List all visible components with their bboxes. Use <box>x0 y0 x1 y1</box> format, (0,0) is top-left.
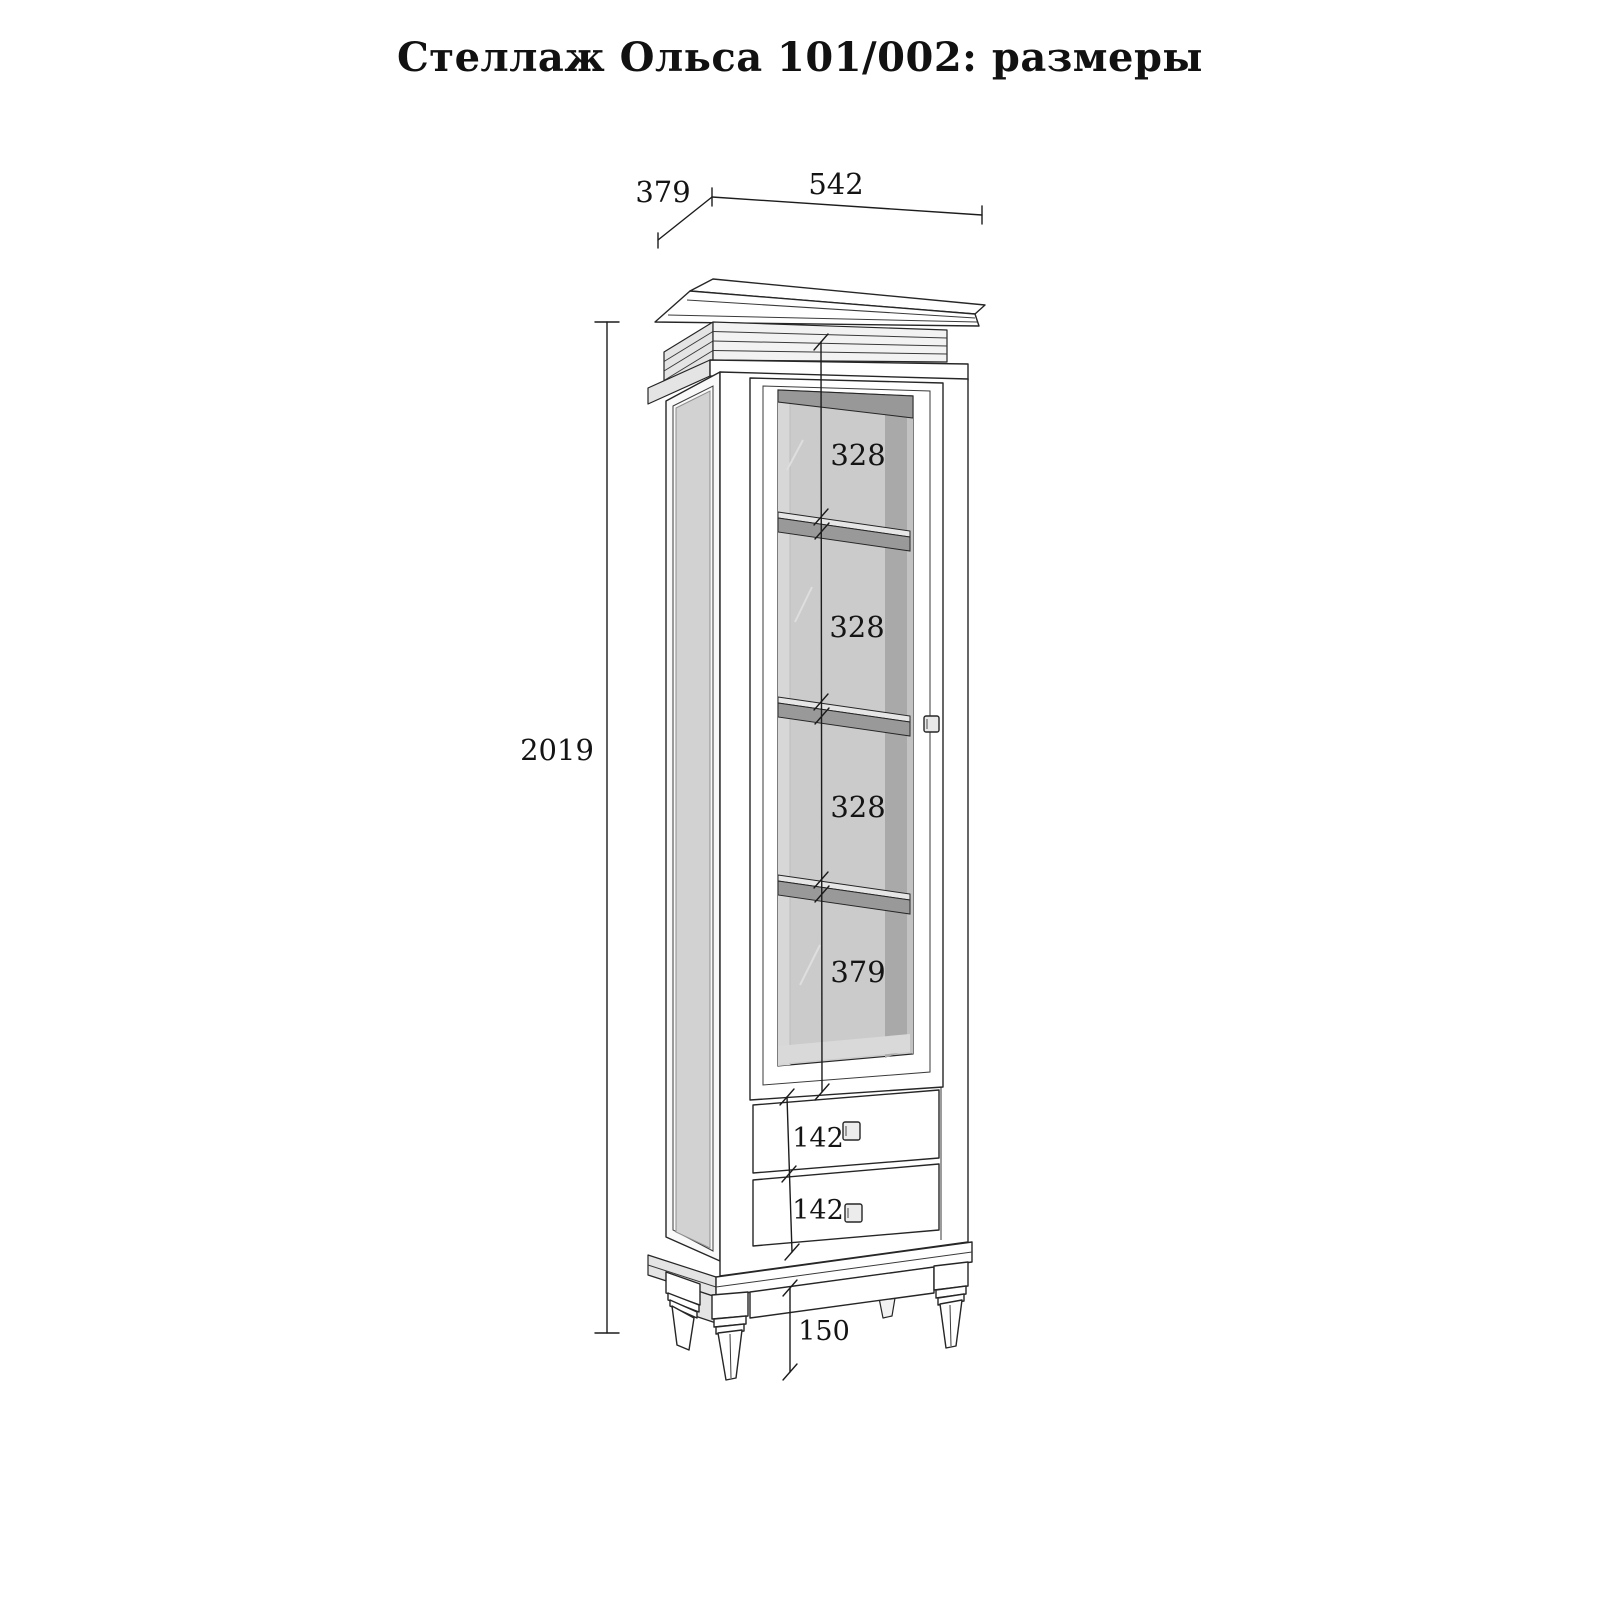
drawer-2-knob <box>845 1204 862 1222</box>
dim-compartment-4-label: 379 <box>830 955 885 989</box>
dim-depth-label: 379 <box>635 175 690 209</box>
dim-depth: 379 <box>635 175 712 248</box>
diagram-page: Стеллаж Ольса 101/002: размеры <box>0 0 1600 1600</box>
furniture-dimension-drawing: 542 379 2019 <box>0 0 1600 1600</box>
dim-legs-label: 150 <box>798 1316 850 1347</box>
dim-width-label: 542 <box>808 167 863 201</box>
dim-compartment-1-label: 328 <box>830 438 885 472</box>
glass-door <box>750 378 943 1100</box>
dim-drawer-1-label: 142 <box>792 1123 844 1154</box>
dim-width: 542 <box>712 167 982 224</box>
door-knob <box>924 716 939 732</box>
drawer-1-knob <box>843 1122 860 1140</box>
front-right-leg <box>934 1262 968 1348</box>
front-left-leg <box>712 1292 748 1380</box>
dim-drawer-2-label: 142 <box>792 1195 844 1226</box>
dim-height: 2019 <box>520 322 619 1333</box>
side-panel <box>666 372 720 1261</box>
dim-compartment-2-label: 328 <box>829 610 884 644</box>
dim-compartment-3-label: 328 <box>830 790 885 824</box>
cornice-crown <box>655 279 985 326</box>
back-left-leg <box>666 1272 700 1350</box>
drawer-1 <box>753 1090 939 1173</box>
dim-height-label: 2019 <box>520 733 594 767</box>
